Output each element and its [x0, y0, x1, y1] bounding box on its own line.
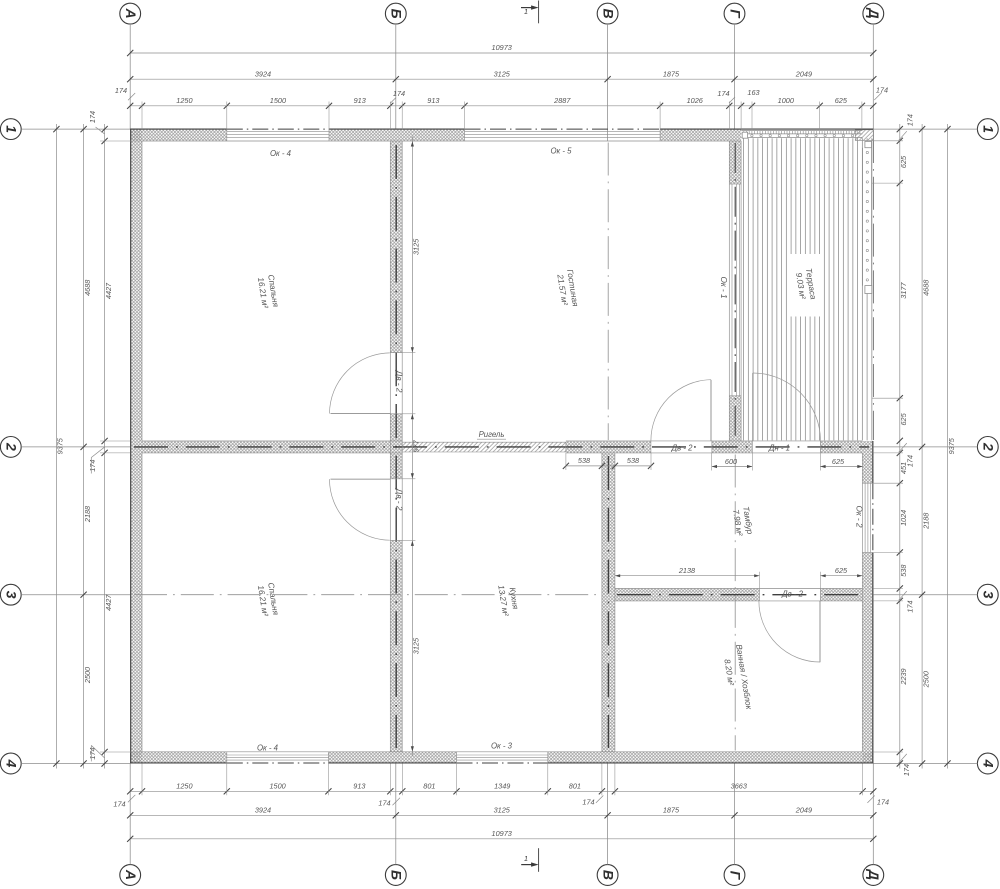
- svg-text:1: 1: [981, 125, 997, 133]
- svg-text:Б: Б: [389, 9, 405, 19]
- svg-text:1875: 1875: [663, 806, 680, 815]
- svg-text:913: 913: [354, 96, 366, 105]
- svg-text:174: 174: [906, 455, 915, 467]
- svg-text:174: 174: [378, 798, 390, 807]
- svg-text:538: 538: [899, 564, 908, 577]
- svg-text:1250: 1250: [176, 96, 192, 105]
- svg-text:3125: 3125: [494, 806, 511, 815]
- svg-text:4: 4: [4, 759, 20, 768]
- svg-text:174: 174: [582, 797, 594, 806]
- svg-text:Дв - 2: Дв - 2: [395, 370, 404, 393]
- svg-text:2239: 2239: [899, 668, 908, 685]
- svg-text:3924: 3924: [255, 806, 271, 815]
- svg-text:174: 174: [717, 89, 729, 98]
- svg-text:1026: 1026: [687, 96, 704, 105]
- svg-text:9375: 9375: [56, 437, 65, 454]
- svg-text:4427: 4427: [104, 594, 113, 611]
- svg-text:1500: 1500: [270, 96, 286, 105]
- svg-text:163: 163: [747, 88, 759, 97]
- svg-text:1: 1: [524, 854, 528, 863]
- svg-text:174: 174: [906, 114, 915, 126]
- svg-text:4688: 4688: [921, 279, 930, 296]
- svg-text:4427: 4427: [104, 282, 113, 299]
- svg-text:913: 913: [427, 96, 439, 105]
- svg-text:174: 174: [877, 797, 889, 806]
- svg-text:801: 801: [423, 782, 435, 791]
- svg-text:2500: 2500: [83, 667, 92, 684]
- svg-text:Д: Д: [866, 869, 882, 880]
- svg-text:625: 625: [832, 457, 845, 466]
- svg-text:В: В: [600, 870, 616, 880]
- svg-text:3125: 3125: [494, 69, 511, 78]
- svg-text:2049: 2049: [795, 69, 812, 78]
- svg-text:А: А: [123, 8, 139, 19]
- svg-text:Г: Г: [727, 9, 743, 19]
- svg-text:4: 4: [981, 759, 997, 768]
- svg-text:Ок - 5: Ок - 5: [550, 146, 572, 155]
- svg-text:1024: 1024: [899, 510, 908, 526]
- svg-text:Ок - 2: Ок - 2: [855, 505, 864, 528]
- svg-text:625: 625: [899, 155, 908, 168]
- svg-text:В: В: [600, 9, 616, 19]
- svg-text:1875: 1875: [663, 69, 680, 78]
- svg-text:174: 174: [906, 600, 915, 612]
- svg-text:Дв - 2: Дв - 2: [671, 443, 693, 452]
- svg-text:Ок - 1: Ок - 1: [719, 276, 728, 298]
- svg-text:174: 174: [88, 111, 97, 123]
- svg-text:2138: 2138: [678, 566, 696, 575]
- svg-text:2: 2: [981, 442, 997, 451]
- svg-text:Д: Д: [866, 8, 882, 19]
- svg-text:Г: Г: [727, 871, 743, 881]
- svg-text:2: 2: [4, 442, 20, 451]
- svg-text:600: 600: [725, 457, 737, 466]
- svg-text:2049: 2049: [795, 806, 812, 815]
- svg-text:174: 174: [113, 799, 125, 808]
- svg-text:Ок - 3: Ок - 3: [491, 742, 513, 751]
- svg-text:Б: Б: [389, 870, 405, 880]
- svg-text:977: 977: [412, 439, 421, 452]
- svg-text:1349: 1349: [494, 782, 510, 791]
- svg-text:10973: 10973: [492, 43, 512, 52]
- svg-text:А: А: [123, 869, 139, 880]
- svg-text:3177: 3177: [899, 282, 908, 299]
- svg-text:1250: 1250: [176, 782, 192, 791]
- svg-text:2887: 2887: [553, 96, 571, 105]
- svg-text:9375: 9375: [947, 437, 956, 454]
- svg-text:Дн - 1: Дн - 1: [768, 443, 790, 452]
- svg-text:3663: 3663: [731, 782, 747, 791]
- svg-text:174: 174: [902, 764, 911, 776]
- svg-text:913: 913: [353, 782, 365, 791]
- svg-text:625: 625: [835, 566, 848, 575]
- svg-text:1500: 1500: [269, 782, 285, 791]
- svg-text:2188: 2188: [921, 512, 930, 530]
- svg-text:3: 3: [4, 591, 20, 599]
- svg-text:801: 801: [569, 782, 581, 791]
- svg-text:174: 174: [393, 89, 405, 98]
- svg-text:538: 538: [578, 456, 591, 465]
- svg-text:2188: 2188: [83, 505, 92, 523]
- svg-text:1: 1: [4, 125, 20, 133]
- svg-text:3: 3: [981, 591, 997, 599]
- svg-text:174: 174: [115, 86, 127, 95]
- svg-text:1000: 1000: [778, 96, 794, 105]
- svg-text:Ок - 4: Ок - 4: [270, 149, 292, 158]
- svg-text:10973: 10973: [492, 829, 512, 838]
- svg-text:1: 1: [524, 7, 528, 16]
- svg-text:625: 625: [835, 96, 848, 105]
- svg-text:174: 174: [88, 460, 97, 472]
- svg-text:Ок - 4: Ок - 4: [257, 744, 279, 753]
- svg-text:174: 174: [876, 86, 888, 95]
- svg-text:Дв - 2: Дв - 2: [395, 488, 404, 511]
- svg-text:Ригель: Ригель: [479, 430, 505, 439]
- svg-text:3924: 3924: [255, 69, 271, 78]
- svg-text:3125: 3125: [412, 637, 421, 654]
- svg-text:538: 538: [627, 456, 640, 465]
- svg-text:3125: 3125: [412, 238, 421, 255]
- svg-text:4688: 4688: [83, 279, 92, 296]
- svg-text:Дв - 2: Дв - 2: [781, 589, 803, 598]
- svg-text:2500: 2500: [921, 671, 930, 688]
- svg-text:625: 625: [899, 412, 908, 425]
